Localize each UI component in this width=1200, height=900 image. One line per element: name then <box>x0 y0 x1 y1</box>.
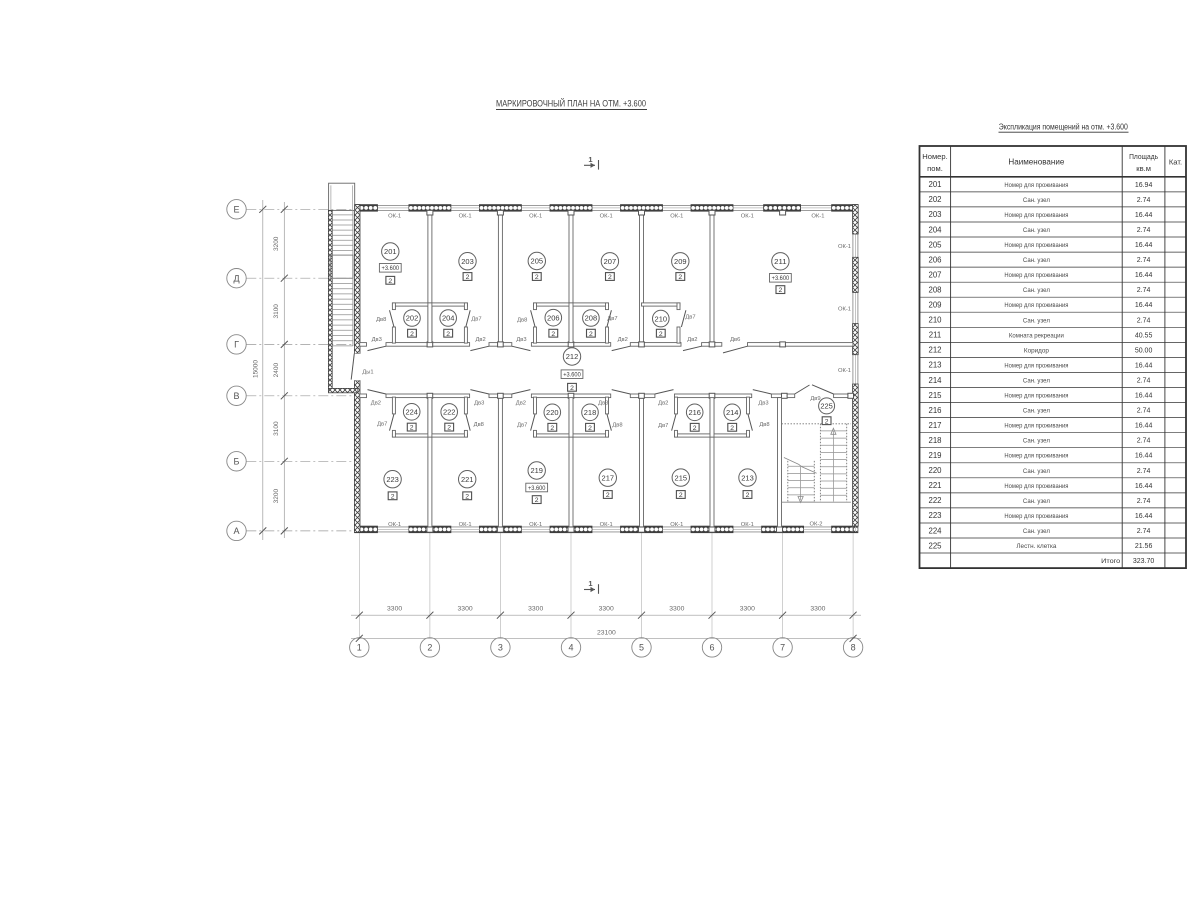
svg-text:Сан. узел: Сан. узел <box>1023 257 1050 264</box>
svg-text:Сан. узел: Сан. узел <box>1023 408 1050 415</box>
svg-text:206: 206 <box>547 313 560 322</box>
svg-text:206: 206 <box>928 255 941 264</box>
svg-text:Номер для проживания: Номер для проживания <box>1004 212 1068 219</box>
svg-text:Номер для проживания: Номер для проживания <box>1004 423 1068 430</box>
svg-text:2: 2 <box>589 331 593 338</box>
svg-text:211: 211 <box>774 257 787 266</box>
svg-text:Г: Г <box>234 340 239 350</box>
svg-text:2: 2 <box>746 492 750 499</box>
svg-text:Номер для проживания: Номер для проживания <box>1004 453 1068 460</box>
svg-text:Дв8: Дв8 <box>376 317 386 323</box>
svg-text:Сан. узел: Сан. узел <box>1023 317 1050 324</box>
svg-text:5: 5 <box>639 643 644 653</box>
svg-text:4: 4 <box>568 643 573 653</box>
svg-text:224: 224 <box>928 526 942 535</box>
svg-text:Дв3: Дв3 <box>516 337 526 343</box>
svg-text:Дв2: Дв2 <box>516 401 526 407</box>
svg-text:212: 212 <box>928 346 941 355</box>
svg-text:Дв6: Дв6 <box>730 337 740 343</box>
svg-text:3: 3 <box>498 643 503 653</box>
svg-text:Ды1: Ды1 <box>362 369 373 375</box>
svg-text:Сан. узел: Сан. узел <box>1023 287 1050 294</box>
svg-text:ОК-1: ОК-1 <box>741 522 754 528</box>
svg-text:Дв2: Дв2 <box>371 401 381 407</box>
svg-text:ОК-1: ОК-1 <box>529 213 542 219</box>
svg-text:217: 217 <box>928 421 941 430</box>
svg-text:202: 202 <box>928 195 941 204</box>
svg-text:207: 207 <box>928 270 941 279</box>
svg-text:221: 221 <box>461 475 474 484</box>
svg-text:3300: 3300 <box>458 605 473 612</box>
svg-text:2: 2 <box>693 425 697 432</box>
svg-text:Дв9: Дв9 <box>810 396 820 402</box>
svg-text:ОК-1: ОК-1 <box>741 213 754 219</box>
svg-text:201: 201 <box>384 247 397 256</box>
svg-text:+3.600: +3.600 <box>772 275 790 282</box>
svg-text:16.44: 16.44 <box>1135 302 1153 309</box>
svg-text:Дв7: Дв7 <box>685 315 695 321</box>
svg-text:215: 215 <box>675 473 688 482</box>
svg-text:211: 211 <box>929 331 941 340</box>
svg-text:3300: 3300 <box>669 605 684 612</box>
svg-text:2.74: 2.74 <box>1137 227 1151 234</box>
svg-text:Номер.: Номер. <box>922 152 947 161</box>
svg-text:224: 224 <box>405 408 418 417</box>
svg-text:Номер для проживания: Номер для проживания <box>1004 272 1068 279</box>
svg-text:2.74: 2.74 <box>1137 287 1151 294</box>
svg-text:Лестн. клетка: Лестн. клетка <box>1016 543 1056 550</box>
svg-text:ОК-1: ОК-1 <box>459 522 472 528</box>
svg-text:16.44: 16.44 <box>1135 212 1153 219</box>
svg-text:1: 1 <box>588 579 592 588</box>
svg-text:ОК-1: ОК-1 <box>670 213 683 219</box>
svg-text:222: 222 <box>928 496 941 505</box>
svg-text:21.56: 21.56 <box>1135 543 1153 550</box>
svg-text:220: 220 <box>546 408 559 417</box>
svg-text:2: 2 <box>466 274 470 281</box>
svg-text:2: 2 <box>447 425 451 432</box>
svg-text:2: 2 <box>446 331 450 338</box>
svg-text:2.74: 2.74 <box>1137 438 1151 445</box>
svg-text:2400: 2400 <box>273 362 280 377</box>
svg-text:225: 225 <box>928 541 942 550</box>
svg-text:Номер для проживания: Номер для проживания <box>1004 513 1068 520</box>
svg-text:209: 209 <box>928 301 941 310</box>
svg-text:221: 221 <box>928 481 941 490</box>
svg-text:Дв2: Дв2 <box>658 401 668 407</box>
svg-text:2: 2 <box>730 425 734 432</box>
svg-text:2: 2 <box>606 492 610 499</box>
svg-text:204: 204 <box>928 225 942 234</box>
svg-text:214: 214 <box>726 408 739 417</box>
svg-text:2: 2 <box>679 492 683 499</box>
svg-text:3100: 3100 <box>273 304 280 319</box>
svg-text:МАРКИРОВОЧНЫЙ ПЛАН НА ОТМ. +3.: МАРКИРОВОЧНЫЙ ПЛАН НА ОТМ. +3.600 <box>496 98 646 110</box>
svg-text:Комната рекреации: Комната рекреации <box>1009 332 1064 339</box>
svg-text:207: 207 <box>604 257 617 266</box>
svg-text:323.70: 323.70 <box>1133 558 1155 565</box>
svg-text:2.74: 2.74 <box>1137 468 1151 475</box>
svg-text:ОК-1: ОК-1 <box>459 213 472 219</box>
svg-text:202: 202 <box>406 314 419 323</box>
svg-text:Дв8: Дв8 <box>759 422 769 428</box>
svg-text:23100: 23100 <box>597 629 616 636</box>
svg-text:210: 210 <box>655 314 668 323</box>
svg-text:2.74: 2.74 <box>1137 257 1151 264</box>
svg-text:3200: 3200 <box>273 488 280 503</box>
svg-text:Площадь: Площадь <box>1129 152 1158 161</box>
svg-text:Дв7: Дв7 <box>377 421 387 427</box>
svg-text:А: А <box>233 526 239 536</box>
svg-text:16.44: 16.44 <box>1135 272 1153 279</box>
svg-text:203: 203 <box>461 257 474 266</box>
svg-text:Коридор: Коридор <box>1024 347 1049 354</box>
svg-text:Б: Б <box>234 457 240 467</box>
svg-text:210: 210 <box>928 316 942 325</box>
svg-text:3300: 3300 <box>810 605 825 612</box>
svg-text:16.44: 16.44 <box>1135 453 1153 460</box>
svg-text:219: 219 <box>928 451 941 460</box>
svg-text:Дв2: Дв2 <box>687 337 697 343</box>
svg-text:Дв3: Дв3 <box>598 401 608 407</box>
svg-text:Дв3: Дв3 <box>758 401 768 407</box>
svg-text:16.44: 16.44 <box>1135 423 1153 430</box>
svg-text:Дв7: Дв7 <box>471 317 481 323</box>
svg-text:7: 7 <box>780 643 785 653</box>
svg-text:ОК-1: ОК-1 <box>600 213 613 219</box>
svg-text:2: 2 <box>410 331 414 338</box>
svg-text:Номер для проживания: Номер для проживания <box>1004 242 1068 249</box>
svg-text:208: 208 <box>585 314 598 323</box>
svg-text:205: 205 <box>531 257 544 266</box>
svg-text:Сан. узел: Сан. узел <box>1023 498 1050 505</box>
svg-text:ОК-1: ОК-1 <box>838 368 851 374</box>
svg-text:2: 2 <box>608 274 612 281</box>
svg-text:Д: Д <box>233 273 239 283</box>
svg-text:16.94: 16.94 <box>1135 182 1153 189</box>
svg-text:214: 214 <box>928 376 942 385</box>
svg-text:2: 2 <box>388 278 392 285</box>
svg-text:209: 209 <box>674 257 687 266</box>
svg-text:2: 2 <box>551 331 555 338</box>
svg-text:пом.: пом. <box>927 164 943 173</box>
svg-text:Дв3: Дв3 <box>372 337 382 343</box>
svg-text:40.55: 40.55 <box>1135 332 1153 339</box>
svg-text:Номер для проживания: Номер для проживания <box>1004 362 1068 369</box>
svg-text:218: 218 <box>928 436 941 445</box>
svg-text:213: 213 <box>741 473 754 482</box>
svg-text:215: 215 <box>928 391 942 400</box>
svg-text:Дв7: Дв7 <box>517 423 527 429</box>
svg-text:3200: 3200 <box>273 236 280 251</box>
svg-text:2: 2 <box>427 643 432 653</box>
svg-text:219: 219 <box>530 466 543 475</box>
svg-text:3300: 3300 <box>740 605 755 612</box>
svg-text:225: 225 <box>820 402 833 411</box>
svg-text:1: 1 <box>357 643 362 653</box>
svg-text:2: 2 <box>588 425 592 432</box>
svg-text:Сан. узел: Сан. узел <box>1023 468 1050 475</box>
svg-text:2.74: 2.74 <box>1137 197 1151 204</box>
svg-text:Е: Е <box>233 205 239 215</box>
svg-text:212: 212 <box>566 352 579 361</box>
svg-text:2: 2 <box>659 331 663 338</box>
svg-text:Дв7: Дв7 <box>658 423 668 429</box>
svg-text:6: 6 <box>709 643 714 653</box>
svg-text:Номер для проживания: Номер для проживания <box>1004 483 1068 490</box>
svg-text:ОК-2: ОК-2 <box>809 522 822 528</box>
svg-text:3300: 3300 <box>387 605 402 612</box>
svg-text:2: 2 <box>410 425 414 432</box>
svg-text:16.44: 16.44 <box>1135 393 1153 400</box>
svg-text:Сан. узел: Сан. узел <box>1023 227 1050 234</box>
svg-text:213: 213 <box>928 361 941 370</box>
svg-text:Сан. узел: Сан. узел <box>1023 197 1050 204</box>
svg-text:Дв8: Дв8 <box>612 423 622 429</box>
svg-text:217: 217 <box>602 473 615 482</box>
svg-text:Номер для проживания: Номер для проживания <box>1004 393 1068 400</box>
svg-text:кв.м: кв.м <box>1136 164 1151 173</box>
svg-text:Дв3: Дв3 <box>474 401 484 407</box>
svg-text:2: 2 <box>779 287 783 294</box>
svg-text:223: 223 <box>386 475 399 484</box>
svg-text:203: 203 <box>928 210 941 219</box>
svg-text:2: 2 <box>570 385 574 392</box>
svg-text:Дв2: Дв2 <box>475 337 485 343</box>
svg-text:+3.600: +3.600 <box>528 485 546 492</box>
svg-text:16.44: 16.44 <box>1135 242 1153 249</box>
svg-text:218: 218 <box>584 408 597 417</box>
svg-text:2: 2 <box>391 493 395 500</box>
svg-text:2: 2 <box>535 274 539 281</box>
svg-text:ОК-1: ОК-1 <box>811 213 824 219</box>
svg-text:2: 2 <box>550 425 554 432</box>
svg-text:216: 216 <box>688 408 701 417</box>
svg-text:8: 8 <box>851 643 856 653</box>
svg-text:Номер для проживания: Номер для проживания <box>1004 182 1068 189</box>
svg-text:201: 201 <box>928 180 941 189</box>
svg-text:ОК-1: ОК-1 <box>388 522 401 528</box>
svg-text:+3.600: +3.600 <box>563 372 581 379</box>
svg-text:Дв2: Дв2 <box>618 337 628 343</box>
svg-text:1: 1 <box>588 155 592 164</box>
svg-text:ОК-1: ОК-1 <box>670 522 683 528</box>
svg-text:Экспликация помещений на отм.: Экспликация помещений на отм. +3.600 <box>999 122 1129 131</box>
svg-text:Сан. узел: Сан. узел <box>1023 528 1050 535</box>
svg-text:Итого: Итого <box>1101 558 1120 565</box>
svg-text:222: 222 <box>443 408 456 417</box>
svg-text:2.74: 2.74 <box>1137 528 1151 535</box>
svg-text:+3.600: +3.600 <box>382 265 400 272</box>
svg-text:2.74: 2.74 <box>1137 408 1151 415</box>
svg-text:Дв8: Дв8 <box>517 318 527 324</box>
svg-text:216: 216 <box>928 406 941 415</box>
svg-text:15000: 15000 <box>253 360 260 378</box>
svg-text:В: В <box>233 391 239 401</box>
svg-text:50.00: 50.00 <box>1135 347 1153 354</box>
svg-text:3300: 3300 <box>528 605 543 612</box>
svg-text:205: 205 <box>928 240 942 249</box>
svg-text:16.44: 16.44 <box>1135 362 1153 369</box>
svg-text:Кат.: Кат. <box>1169 157 1182 166</box>
svg-text:ОК-1: ОК-1 <box>388 213 401 219</box>
svg-text:ОК-1: ОК-1 <box>838 244 851 250</box>
svg-text:ОК-1: ОК-1 <box>838 306 851 312</box>
svg-text:2.74: 2.74 <box>1137 317 1151 324</box>
svg-text:16.44: 16.44 <box>1135 483 1153 490</box>
svg-text:ОК-1: ОК-1 <box>529 522 542 528</box>
svg-text:2: 2 <box>465 493 469 500</box>
svg-text:220: 220 <box>928 466 942 475</box>
svg-text:2: 2 <box>825 418 829 425</box>
svg-text:16.44: 16.44 <box>1135 513 1153 520</box>
svg-text:Наименование: Наименование <box>1008 157 1065 166</box>
svg-text:223: 223 <box>928 511 941 520</box>
svg-text:Номер для проживания: Номер для проживания <box>1004 302 1068 309</box>
svg-text:2.74: 2.74 <box>1137 378 1151 385</box>
svg-text:Сан. узел: Сан. узел <box>1023 438 1050 445</box>
svg-text:ОК-1: ОК-1 <box>600 522 613 528</box>
svg-text:2.74: 2.74 <box>1137 498 1151 505</box>
svg-text:2: 2 <box>678 274 682 281</box>
svg-text:204: 204 <box>442 314 455 323</box>
svg-text:3100: 3100 <box>273 421 280 436</box>
svg-text:208: 208 <box>928 286 941 295</box>
svg-text:Дв7: Дв7 <box>607 316 617 322</box>
svg-text:3300: 3300 <box>599 605 614 612</box>
svg-text:Сан. узел: Сан. узел <box>1023 378 1050 385</box>
svg-text:Дв8: Дв8 <box>474 422 484 428</box>
svg-text:2: 2 <box>535 497 539 504</box>
